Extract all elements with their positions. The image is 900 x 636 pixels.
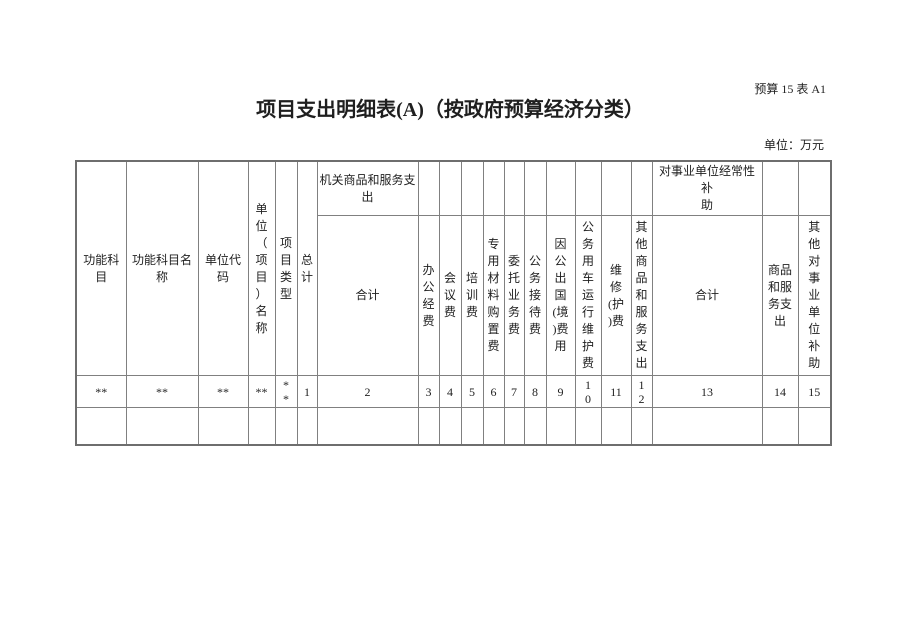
data-cell: 7 [504,376,524,408]
group-header-agency-goods-services: 机关商品和服务支 出 [317,161,418,216]
empty-cell [631,408,652,445]
empty-header-cell [524,161,546,216]
data-cell: 6 [483,376,504,408]
empty-header-cell [439,161,461,216]
empty-cell [798,408,831,445]
th-functional-subject: 功能科 目 [76,161,126,376]
empty-cell [198,408,248,445]
empty-cell [126,408,198,445]
empty-cell [575,408,601,445]
th-official-reception-fee: 公 务 接 待 费 [524,216,546,376]
header-group-row: 功能科 目 功能科目名 称 单位代 码 单 位 （ 项 目 ） 名 称 项 目 … [76,161,831,216]
empty-cell [275,408,297,445]
empty-cell [248,408,275,445]
data-cell: 1 [297,376,317,408]
empty-header-cell [601,161,631,216]
th-other-goods-services-expense: 其 他 商 品 和 服 务 支 出 [631,216,652,376]
data-cell: 13 [652,376,762,408]
th-official-vehicle-operation-fee: 公 务 用 车 运 行 维 护 费 [575,216,601,376]
empty-header-cell [631,161,652,216]
th-other-institution-subsidy: 其 他 对 事 业 单 位 补 助 [798,216,831,376]
th-goods-services-expense: 商品 和服 务支 出 [762,216,798,376]
data-cell: 1 2 [631,376,652,408]
empty-cell [483,408,504,445]
empty-cell [461,408,483,445]
empty-header-cell [575,161,601,216]
empty-cell [524,408,546,445]
data-cell: 14 [762,376,798,408]
th-agency-total: 合计 [317,216,418,376]
th-entrusted-business-fee: 委 托 业 务 费 [504,216,524,376]
th-meeting-fee: 会 议 费 [439,216,461,376]
th-special-material-purchase-fee: 专 用 材 料 购 置 费 [483,216,504,376]
empty-cell [297,408,317,445]
data-cell: ** [248,376,275,408]
doc-number-label: 预算 15 表 A1 [754,82,826,96]
empty-header-cell [483,161,504,216]
th-functional-subject-name: 功能科目名 称 [126,161,198,376]
data-cell: 9 [546,376,575,408]
th-project-type: 项 目 类 型 [275,161,297,376]
budget-table: 功能科 目 功能科目名 称 单位代 码 单 位 （ 项 目 ） 名 称 项 目 … [75,160,832,446]
th-maintenance-fee: 维 修 (护 )费 [601,216,631,376]
data-cell: 8 [524,376,546,408]
th-subsidy-total: 合计 [652,216,762,376]
empty-cell [418,408,439,445]
empty-cell [601,408,631,445]
th-unit-project-name: 单 位 （ 项 目 ） 名 称 [248,161,275,376]
empty-cell [439,408,461,445]
empty-header-cell [798,161,831,216]
empty-cell [317,408,418,445]
table-row-blank [76,408,831,445]
th-training-fee: 培 训 费 [461,216,483,376]
data-cell: 4 [439,376,461,408]
empty-cell [504,408,524,445]
empty-header-cell [418,161,439,216]
page-container: 预算 15 表 A1 项目支出明细表(A)（按政府预算经济分类） 单位：万元 功… [0,0,900,636]
empty-cell [76,408,126,445]
th-grand-total: 总 计 [297,161,317,376]
empty-header-cell [546,161,575,216]
empty-header-cell [461,161,483,216]
empty-header-cell [504,161,524,216]
th-office-funds: 办 公 经 费 [418,216,439,376]
data-cell: 5 [461,376,483,408]
unit-label: 单位：万元 [764,138,824,152]
empty-cell [762,408,798,445]
data-cell: ** [198,376,248,408]
group-header-institution-subsidy: 对事业单位经常性补 助 [652,161,762,216]
data-cell: 1 0 [575,376,601,408]
data-cell: 15 [798,376,831,408]
page-title: 项目支出明细表(A)（按政府预算经济分类） [0,98,900,123]
th-overseas-travel-fee: 因 公 出 国 (境 )费 用 [546,216,575,376]
th-unit-code: 单位代 码 [198,161,248,376]
empty-header-cell [762,161,798,216]
table-row-data: ** ** ** ** * * 1 2 3 4 5 6 7 8 9 1 0 11… [76,376,831,408]
data-cell: ** [126,376,198,408]
data-cell: 3 [418,376,439,408]
data-cell: * * [275,376,297,408]
data-cell: ** [76,376,126,408]
empty-cell [546,408,575,445]
data-cell: 11 [601,376,631,408]
empty-cell [652,408,762,445]
data-cell: 2 [317,376,418,408]
